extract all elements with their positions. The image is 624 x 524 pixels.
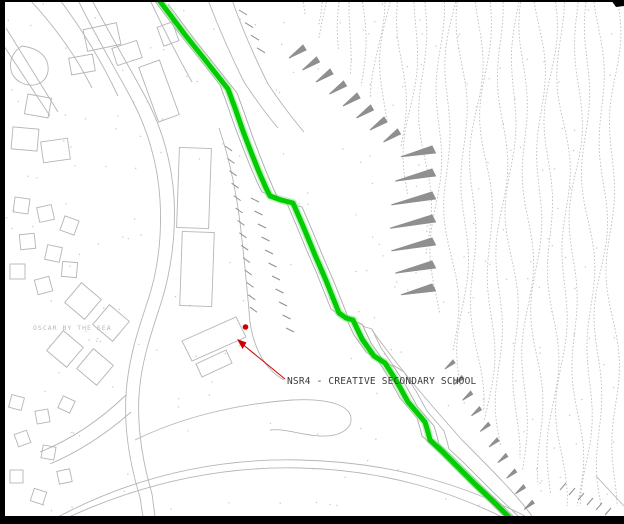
- nsr4-leader-line: [241, 343, 285, 379]
- route-highlight-group: [159, 0, 516, 524]
- frame-left: [0, 0, 5, 524]
- frame-bottom: [0, 516, 624, 524]
- route-highlight-halo: [159, 0, 516, 524]
- nsr4-site-label: NSR4 - CREATIVE SECONDARY SCHOOL: [287, 376, 477, 387]
- nsr4-arrowhead-icon: [237, 339, 247, 349]
- building-outlines: [9, 22, 246, 505]
- site-plan-map: NSR4 - CREATIVE SECONDARY SCHOOL OSCAR B…: [0, 0, 624, 524]
- estate-label: OSCAR BY THE SEA: [33, 324, 112, 332]
- frame-top: [0, 0, 624, 2]
- route-highlight-line: [159, 0, 516, 524]
- nsr4-dot-marker: [243, 324, 249, 330]
- frame-corner-mark: [611, 0, 624, 7]
- slope-hatching: [225, 10, 611, 515]
- contour-lines: [303, 2, 621, 506]
